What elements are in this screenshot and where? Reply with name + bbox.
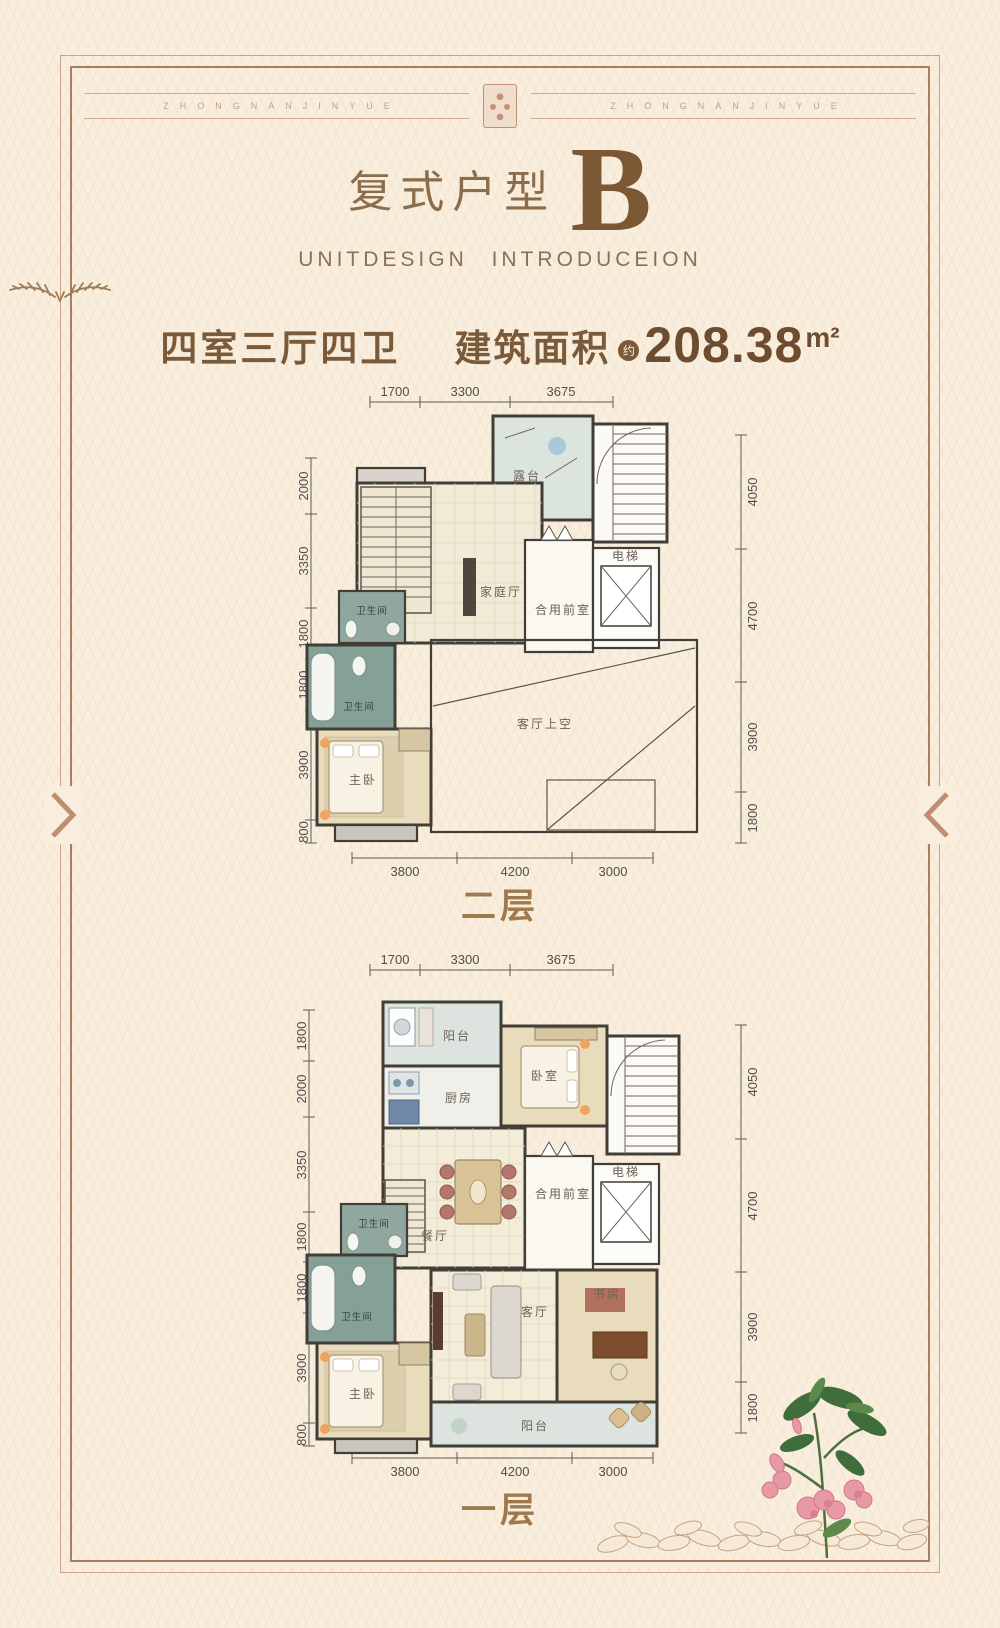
dim-label: 4700 (745, 602, 760, 631)
right-chevron-icon (918, 786, 956, 844)
spec-approx-badge: 约 (618, 340, 639, 361)
dim-label: 800 (296, 821, 311, 843)
dim-label: 3300 (451, 384, 480, 399)
room-label-kitchen: 厨房 (445, 1090, 473, 1105)
room-label-bath-lower-f1: 卫生间 (341, 1311, 373, 1323)
room-label-dining: 餐厅 (421, 1228, 449, 1243)
room-label-balcony-top: 阳台 (443, 1028, 471, 1043)
dim-label: 2000 (296, 472, 311, 501)
dim-label: 3675 (547, 384, 576, 399)
dim-label: 4200 (501, 1464, 530, 1479)
room-label-living-void: 客厅上空 (517, 716, 573, 731)
spec-line: 四室三厅四卫 建筑面积 约 208.38 m² (0, 316, 1000, 374)
room-label-bedroom: 卧室 (531, 1068, 559, 1083)
dim-label: 3300 (451, 952, 480, 967)
room-label-family-hall: 家庭厅 (480, 584, 522, 599)
dim-label: 4050 (745, 478, 760, 507)
dim-label: 3350 (294, 1151, 309, 1180)
left-chevron-icon (44, 786, 82, 844)
floor2-label: 二层 (0, 878, 1000, 929)
header: 复式户型 B UNITDESIGN INTRODUCEION 四室三厅四卫 建筑… (0, 140, 1000, 374)
banner: ZHONGNANJINYUE ZHONGNANJINYUE (84, 90, 916, 122)
dim-label: 1800 (294, 1022, 309, 1051)
room-label-master: 主卧 (349, 773, 377, 787)
room-label-bath-upper-f1: 卫生间 (358, 1218, 390, 1230)
page-title: 复式户型 B (0, 140, 1000, 240)
banner-text-right: ZHONGNANJINYUE (531, 90, 916, 122)
banner-text-left: ZHONGNANJINYUE (84, 90, 469, 122)
banner-line-left: ZHONGNANJINYUE (84, 90, 469, 122)
dim-label: 3900 (745, 723, 760, 752)
room-label-balcony-bottom: 阳台 (521, 1418, 549, 1433)
floorplan-first: 1700 3300 3675 1800 2000 3350 1800 1800 … (295, 940, 755, 1485)
room-label-living: 客厅 (521, 1304, 549, 1319)
room-label-elevator: 电梯 (612, 549, 640, 563)
room-label-study: 书房 (593, 1286, 621, 1301)
spec-area-value: 208.38 (644, 316, 803, 374)
dim-label: 3900 (294, 1354, 309, 1383)
dim-label: 3800 (391, 1464, 420, 1479)
floorplan-second: 1700 3300 3675 2000 3350 1800 1800 3900 … (295, 388, 755, 888)
dim-label: 1800 (294, 1223, 309, 1252)
dim-label: 3000 (599, 864, 628, 879)
spec-rooms: 四室三厅四卫 (160, 318, 400, 372)
room-label-shared-foyer-f1: 合用前室 (535, 1186, 591, 1201)
dim-label: 3800 (391, 864, 420, 879)
flower-decoration (742, 1368, 912, 1568)
dim-label: 4700 (745, 1192, 760, 1221)
laurel-icon (0, 278, 1000, 304)
room-label-bath-upper: 卫生间 (356, 605, 388, 617)
room-label-master-f1: 主卧 (349, 1387, 377, 1401)
dim-label: 1800 (745, 804, 760, 833)
dim-label: 3675 (547, 952, 576, 967)
dim-label: 4050 (745, 1068, 760, 1097)
room-label-bath-lower: 卫生间 (343, 701, 375, 713)
room-label-terrace: 露台 (513, 468, 541, 483)
dim-label: 2000 (294, 1075, 309, 1104)
page-subtitle: UNITDESIGN INTRODUCEION (0, 248, 1000, 272)
dim-label: 3350 (296, 547, 311, 576)
dim-label: 4200 (501, 864, 530, 879)
banner-medallion-icon (483, 84, 517, 128)
dim-label: 1700 (381, 384, 410, 399)
page-title-letter: B (570, 140, 651, 240)
floor2-rooms: 露台 家庭厅 合用前室 电梯 (307, 416, 697, 841)
room-label-elevator-f1: 电梯 (612, 1165, 640, 1179)
dim-label: 3900 (296, 751, 311, 780)
dim-label: 3000 (599, 1464, 628, 1479)
floor1-rooms: 阳台 厨房 卧室 (307, 1002, 679, 1453)
banner-line-right: ZHONGNANJINYUE (531, 90, 916, 122)
room-label-shared-foyer: 合用前室 (535, 602, 591, 617)
dim-label: 3900 (745, 1313, 760, 1342)
dim-label: 1700 (381, 952, 410, 967)
page-title-cn: 复式户型 (348, 156, 556, 240)
spec-area: 建筑面积 约 208.38 m² (454, 316, 839, 374)
poster-page: ZHONGNANJINYUE ZHONGNANJINYUE 复式户型 B UNI… (0, 0, 1000, 1628)
spec-area-label: 建筑面积 (454, 318, 610, 372)
dim-label: 800 (294, 1424, 309, 1446)
spec-area-unit: m² (805, 322, 839, 368)
